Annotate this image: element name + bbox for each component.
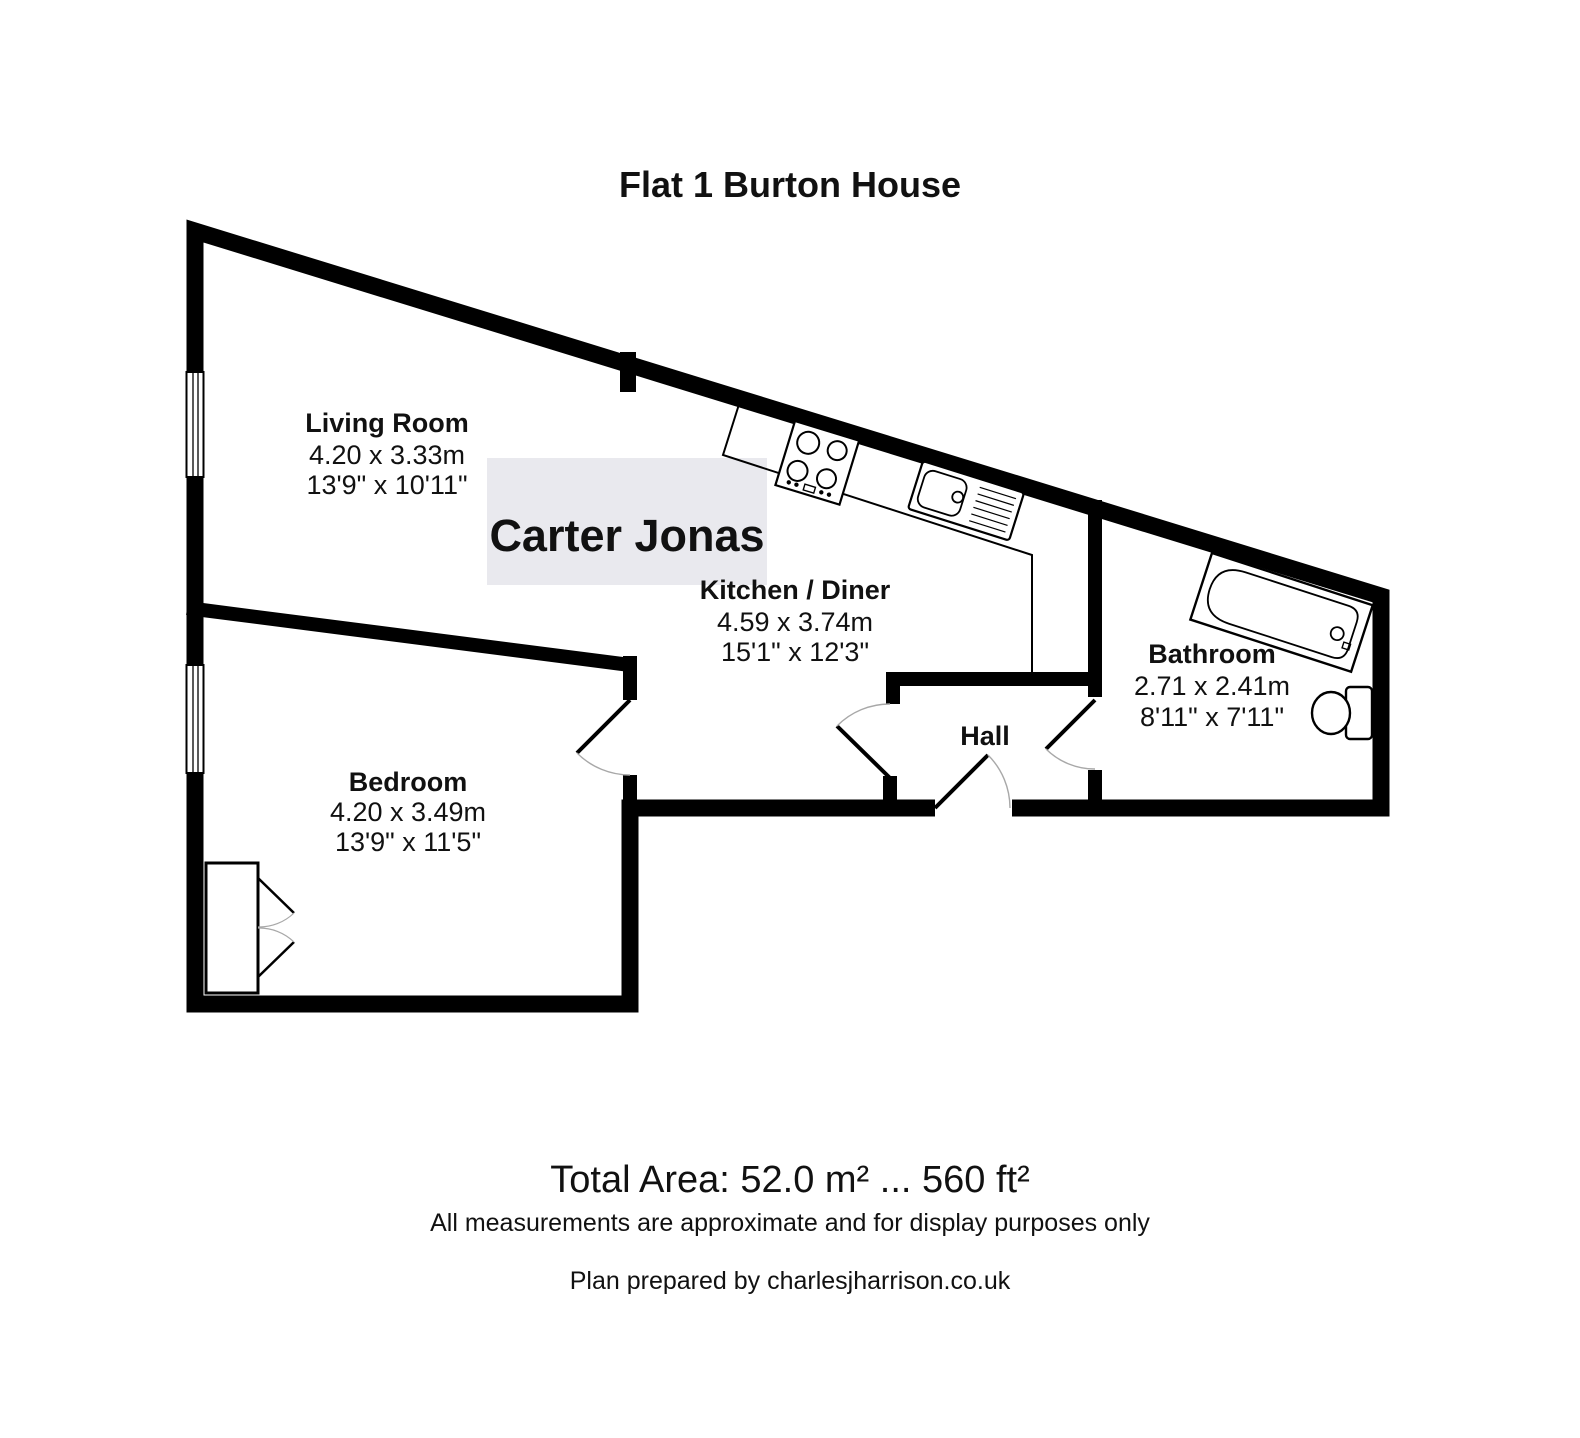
credit-text: Plan prepared by charlesjharrison.co.uk <box>570 1267 1011 1295</box>
kitchen-name: Kitchen / Diner <box>700 575 891 605</box>
living-room-imperial: 13'9" x 10'11" <box>306 470 467 500</box>
bedroom-window-icon <box>187 665 204 773</box>
living-room-window-icon <box>187 372 204 477</box>
footer: Total Area: 52.0 m² ... 560 ft² All meas… <box>430 1159 1150 1295</box>
page-title: Flat 1 Burton House <box>619 164 961 205</box>
bathroom-name: Bathroom <box>1148 639 1276 669</box>
kitchen-imperial: 15'1" x 12'3" <box>721 637 869 667</box>
floorplan-drawing: Flat 1 Burton House Carter Jonas <box>0 0 1580 1438</box>
living-room-label: Living Room 4.20 x 3.33m 13'9" x 10'11" <box>305 408 469 500</box>
wardrobe-icon <box>206 863 294 993</box>
kitchen-label: Kitchen / Diner 4.59 x 3.74m 15'1" x 12'… <box>700 575 891 667</box>
bedroom-label: Bedroom 4.20 x 3.49m 13'9" x 11'5" <box>330 767 486 857</box>
living-room-metric: 4.20 x 3.33m <box>309 440 465 470</box>
kitchen-metric: 4.59 x 3.74m <box>717 607 873 637</box>
bathroom-metric: 2.71 x 2.41m <box>1134 671 1290 701</box>
bathroom-imperial: 8'11" x 7'11" <box>1140 702 1284 732</box>
bathroom-label: Bathroom 2.71 x 2.41m 8'11" x 7'11" <box>1134 639 1290 732</box>
bedroom-metric: 4.20 x 3.49m <box>330 797 486 827</box>
bedroom-name: Bedroom <box>349 767 468 797</box>
toilet-icon <box>1312 687 1372 739</box>
floorplan-page: Flat 1 Burton House Carter Jonas <box>0 0 1580 1438</box>
watermark: Carter Jonas <box>487 458 767 585</box>
watermark-label: Carter Jonas <box>489 510 764 561</box>
entrance-door-icon <box>935 755 1010 808</box>
total-area-text: Total Area: 52.0 m² ... 560 ft² <box>550 1159 1029 1201</box>
hall-name: Hall <box>960 721 1010 751</box>
living-room-name: Living Room <box>305 408 469 438</box>
doors <box>577 700 1095 808</box>
living-bedroom-wall <box>187 608 630 665</box>
bedroom-door-icon <box>577 700 630 775</box>
bathroom-door-icon <box>1046 700 1095 769</box>
kitchen-hall-door-icon <box>837 704 890 778</box>
disclaimer-text: All measurements are approximate and for… <box>430 1209 1150 1237</box>
bedroom-imperial: 13'9" x 11'5" <box>335 827 481 857</box>
